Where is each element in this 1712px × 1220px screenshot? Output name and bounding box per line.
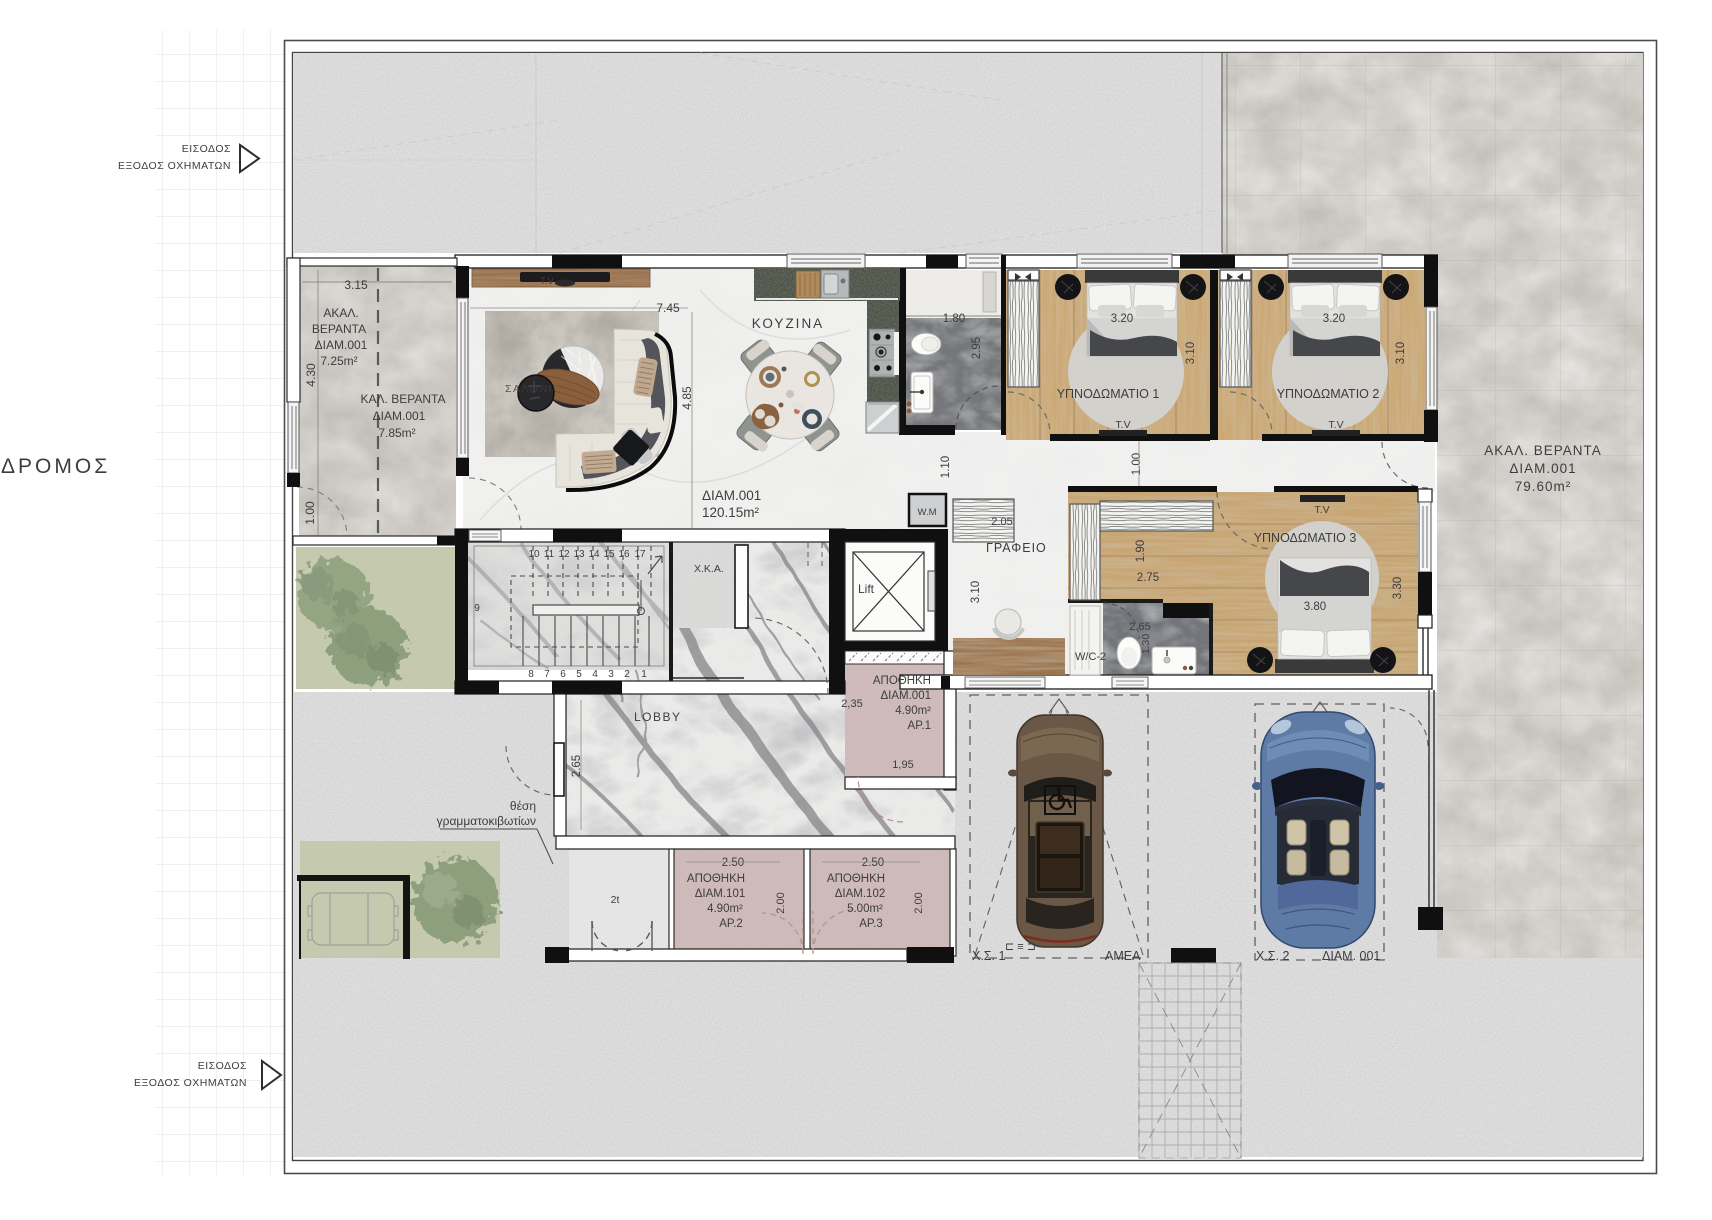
svg-text:Lift: Lift: [858, 582, 875, 596]
svg-text:2.05: 2.05: [991, 516, 1012, 528]
svg-text:1: 1: [641, 669, 647, 680]
svg-text:2.75: 2.75: [1137, 572, 1159, 584]
svg-text:3.30: 3.30: [1392, 577, 1404, 599]
svg-text:5: 5: [576, 669, 582, 680]
svg-text:13: 13: [573, 549, 585, 560]
svg-text:T.V: T.V: [1314, 504, 1329, 516]
svg-text:Χ.Σ. 2: Χ.Σ. 2: [1256, 949, 1289, 963]
svg-text:Χ.Σ. 1: Χ.Σ. 1: [972, 949, 1005, 963]
svg-text:⊏ ≡ ⊐: ⊏ ≡ ⊐: [1005, 941, 1036, 953]
svg-text:W.M: W.M: [918, 507, 937, 518]
svg-text:7.25m²: 7.25m²: [320, 354, 357, 368]
svg-text:12: 12: [558, 549, 570, 560]
svg-text:ΔΙΑΜ.001: ΔΙΑΜ.001: [702, 488, 761, 503]
svg-text:ΕΞΟΔΟΣ ΟΧΗΜΑΤΩΝ: ΕΞΟΔΟΣ ΟΧΗΜΑΤΩΝ: [118, 160, 231, 172]
svg-text:2.00: 2.00: [913, 892, 925, 913]
svg-text:ΑΜΕΑ: ΑΜΕΑ: [1105, 949, 1141, 963]
svg-text:LOBBY: LOBBY: [634, 710, 682, 724]
svg-text:ΔΙΑΜ. 001: ΔΙΑΜ. 001: [1322, 949, 1380, 963]
svg-text:ΔΙΑΜ.001: ΔΙΑΜ.001: [880, 690, 931, 702]
svg-text:AP.2: AP.2: [719, 918, 742, 930]
svg-text:1.00: 1.00: [303, 501, 317, 525]
svg-text:10: 10: [528, 549, 540, 560]
svg-text:3.10: 3.10: [1185, 342, 1197, 364]
svg-text:2.50: 2.50: [722, 857, 744, 869]
svg-text:2.65: 2.65: [1129, 621, 1150, 633]
svg-text:8: 8: [528, 669, 534, 680]
svg-text:4.90m²: 4.90m²: [707, 903, 743, 915]
svg-text:ΔΙΑΜ.001: ΔΙΑΜ.001: [373, 409, 426, 423]
svg-text:θέση: θέση: [510, 799, 536, 813]
svg-text:9: 9: [474, 603, 480, 614]
svg-text:ΔΙΑΜ.101: ΔΙΑΜ.101: [695, 888, 746, 900]
svg-text:2.95: 2.95: [971, 337, 983, 359]
svg-text:ΕΙΣΟΔΟΣ: ΕΙΣΟΔΟΣ: [182, 143, 231, 155]
svg-text:ΑΚΑΛ.: ΑΚΑΛ.: [323, 306, 358, 320]
svg-text:T.V: T.V: [1115, 419, 1130, 431]
svg-text:3.15: 3.15: [344, 278, 368, 292]
svg-text:ΚΟΥΖΙΝΑ: ΚΟΥΖΙΝΑ: [752, 316, 824, 331]
svg-text:120.15m²: 120.15m²: [702, 505, 760, 520]
svg-text:ΑΠΟΘΗΚΗ: ΑΠΟΘΗΚΗ: [873, 675, 931, 687]
svg-text:ΑΚΑΛ. ΒΕΡΑΝΤΑ: ΑΚΑΛ. ΒΕΡΑΝΤΑ: [1484, 443, 1602, 458]
svg-text:ΓΡΑΦΕΙΟ: ΓΡΑΦΕΙΟ: [986, 541, 1047, 555]
svg-text:5.00m²: 5.00m²: [847, 903, 883, 915]
svg-text:6: 6: [560, 669, 566, 680]
svg-text:15: 15: [603, 549, 615, 560]
svg-text:W/C-2: W/C-2: [1075, 651, 1106, 663]
svg-text:T.V: T.V: [540, 276, 554, 287]
svg-text:7: 7: [544, 669, 550, 680]
svg-text:1.90: 1.90: [1135, 540, 1147, 562]
svg-text:3.20: 3.20: [1323, 313, 1345, 325]
svg-text:1.30: 1.30: [1140, 634, 1152, 655]
svg-text:ΕΙΣΟΔΟΣ: ΕΙΣΟΔΟΣ: [198, 1060, 247, 1072]
svg-text:ΒΕΡΑΝΤΑ: ΒΕΡΑΝΤΑ: [312, 322, 366, 336]
svg-text:3: 3: [608, 669, 614, 680]
svg-text:1.00: 1.00: [1131, 453, 1143, 475]
svg-text:7.45: 7.45: [656, 301, 680, 315]
svg-text:2.50: 2.50: [862, 857, 884, 869]
svg-text:4.85: 4.85: [680, 386, 694, 410]
svg-text:14: 14: [588, 549, 600, 560]
svg-text:ΥΠΝΟΔΩΜΑΤΙΟ 3: ΥΠΝΟΔΩΜΑΤΙΟ 3: [1254, 531, 1357, 545]
svg-text:1,95: 1,95: [892, 759, 913, 771]
svg-text:ΥΠΝΟΔΩΜΑΤΙΟ 2: ΥΠΝΟΔΩΜΑΤΙΟ 2: [1277, 387, 1380, 401]
svg-text:16: 16: [618, 549, 630, 560]
svg-text:1.10: 1.10: [940, 456, 952, 478]
svg-text:2.65: 2.65: [571, 755, 583, 777]
svg-text:3.80: 3.80: [1304, 601, 1326, 613]
svg-text:4: 4: [592, 669, 598, 680]
svg-text:2t: 2t: [611, 894, 620, 906]
svg-text:AP.1: AP.1: [908, 720, 931, 732]
svg-text:79.60m²: 79.60m²: [1515, 479, 1572, 494]
svg-text:ΥΠΝΟΔΩΜΑΤΙΟ 1: ΥΠΝΟΔΩΜΑΤΙΟ 1: [1057, 387, 1160, 401]
svg-text:ΑΠΟΘΗΚΗ: ΑΠΟΘΗΚΗ: [827, 873, 885, 885]
svg-text:ΣΑΛΟΝΙ: ΣΑΛΟΝΙ: [505, 383, 553, 395]
svg-text:2,35: 2,35: [841, 698, 862, 710]
svg-text:γραμματοκιβωτίων: γραμματοκιβωτίων: [437, 814, 536, 828]
svg-text:ΔΙΑΜ.001: ΔΙΑΜ.001: [315, 338, 368, 352]
svg-text:ΔΡΟΜΟΣ: ΔΡΟΜΟΣ: [1, 455, 110, 478]
svg-text:3.20: 3.20: [1111, 313, 1133, 325]
svg-text:ΔΙΑΜ.102: ΔΙΑΜ.102: [835, 888, 886, 900]
svg-text:11: 11: [544, 549, 555, 560]
svg-text:2.00: 2.00: [775, 892, 787, 913]
svg-text:ΑΠΟΘΗΚΗ: ΑΠΟΘΗΚΗ: [687, 873, 745, 885]
svg-text:T.V: T.V: [1328, 419, 1343, 431]
svg-text:AP.3: AP.3: [859, 918, 882, 930]
svg-text:ΚΑΛ. ΒΕΡΑΝΤΑ: ΚΑΛ. ΒΕΡΑΝΤΑ: [361, 392, 446, 406]
svg-text:17: 17: [634, 549, 646, 560]
svg-text:2: 2: [624, 669, 630, 680]
svg-text:3.10: 3.10: [1395, 342, 1407, 364]
svg-text:1.80: 1.80: [943, 313, 965, 325]
svg-text:3.10: 3.10: [970, 581, 982, 603]
svg-text:ΕΞΟΔΟΣ ΟΧΗΜΑΤΩΝ: ΕΞΟΔΟΣ ΟΧΗΜΑΤΩΝ: [134, 1077, 247, 1089]
svg-text:4.90m²: 4.90m²: [895, 705, 931, 717]
svg-text:ΔΙΑΜ.001: ΔΙΑΜ.001: [1509, 461, 1576, 476]
svg-text:7.85m²: 7.85m²: [378, 426, 415, 440]
svg-text:Χ.Κ.Α.: Χ.Κ.Α.: [694, 563, 724, 575]
svg-text:4.30: 4.30: [304, 363, 318, 387]
